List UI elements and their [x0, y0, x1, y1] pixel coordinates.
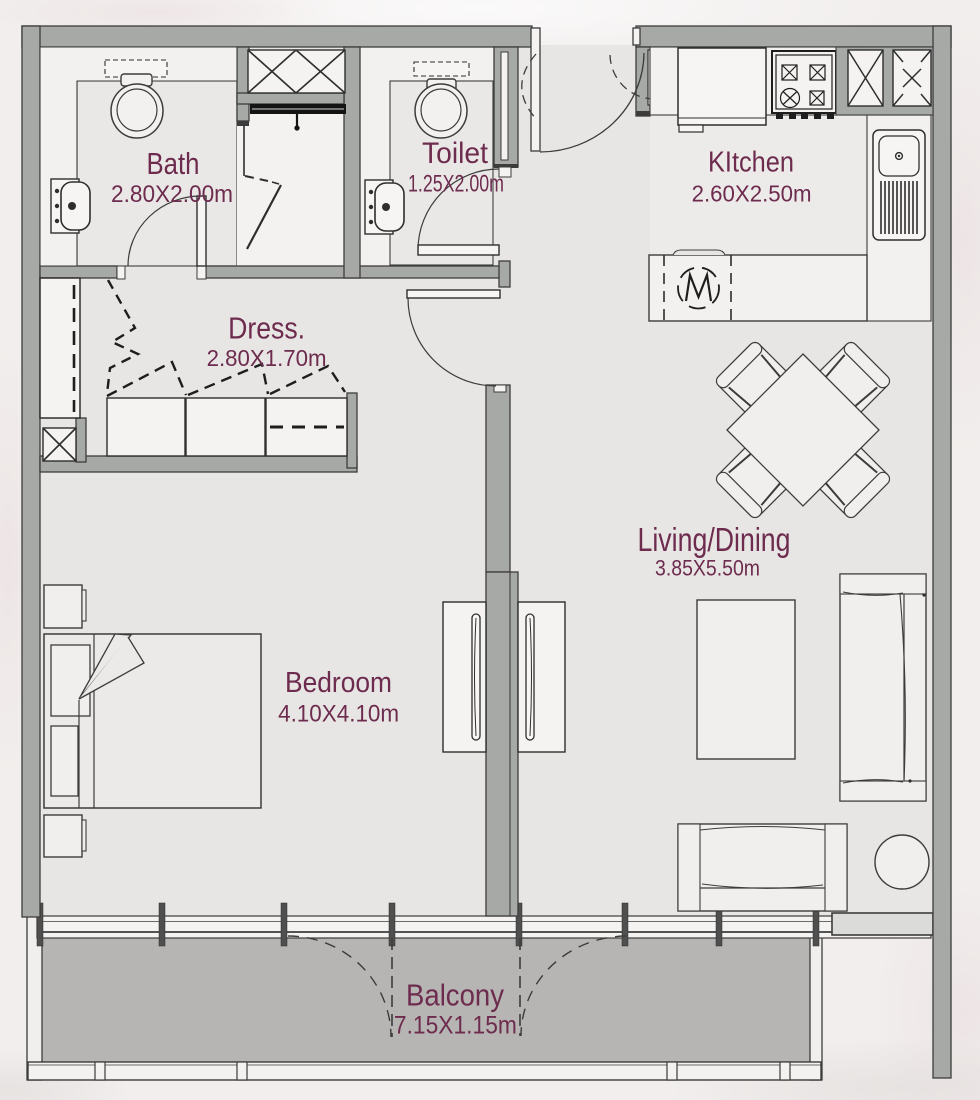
- svg-text:Toilet: Toilet: [422, 137, 489, 170]
- svg-text:3.85X5.50m: 3.85X5.50m: [655, 556, 760, 581]
- svg-text:7.15X1.15m: 7.15X1.15m: [394, 1012, 517, 1040]
- svg-text:4.10X4.10m: 4.10X4.10m: [278, 700, 399, 727]
- svg-text:2.80X1.70m: 2.80X1.70m: [207, 345, 327, 371]
- svg-text:Bedroom: Bedroom: [285, 667, 392, 699]
- svg-text:2.60X2.50m: 2.60X2.50m: [692, 180, 812, 206]
- svg-text:Dress.: Dress.: [228, 310, 305, 345]
- svg-text:Living/Dining: Living/Dining: [638, 521, 791, 558]
- svg-text:KItchen: KItchen: [708, 146, 794, 178]
- svg-text:2.80X2.00m: 2.80X2.00m: [111, 181, 233, 208]
- svg-text:Balcony: Balcony: [406, 978, 504, 1013]
- svg-text:Bath: Bath: [147, 146, 200, 181]
- svg-text:1.25X2.00m: 1.25X2.00m: [408, 171, 504, 198]
